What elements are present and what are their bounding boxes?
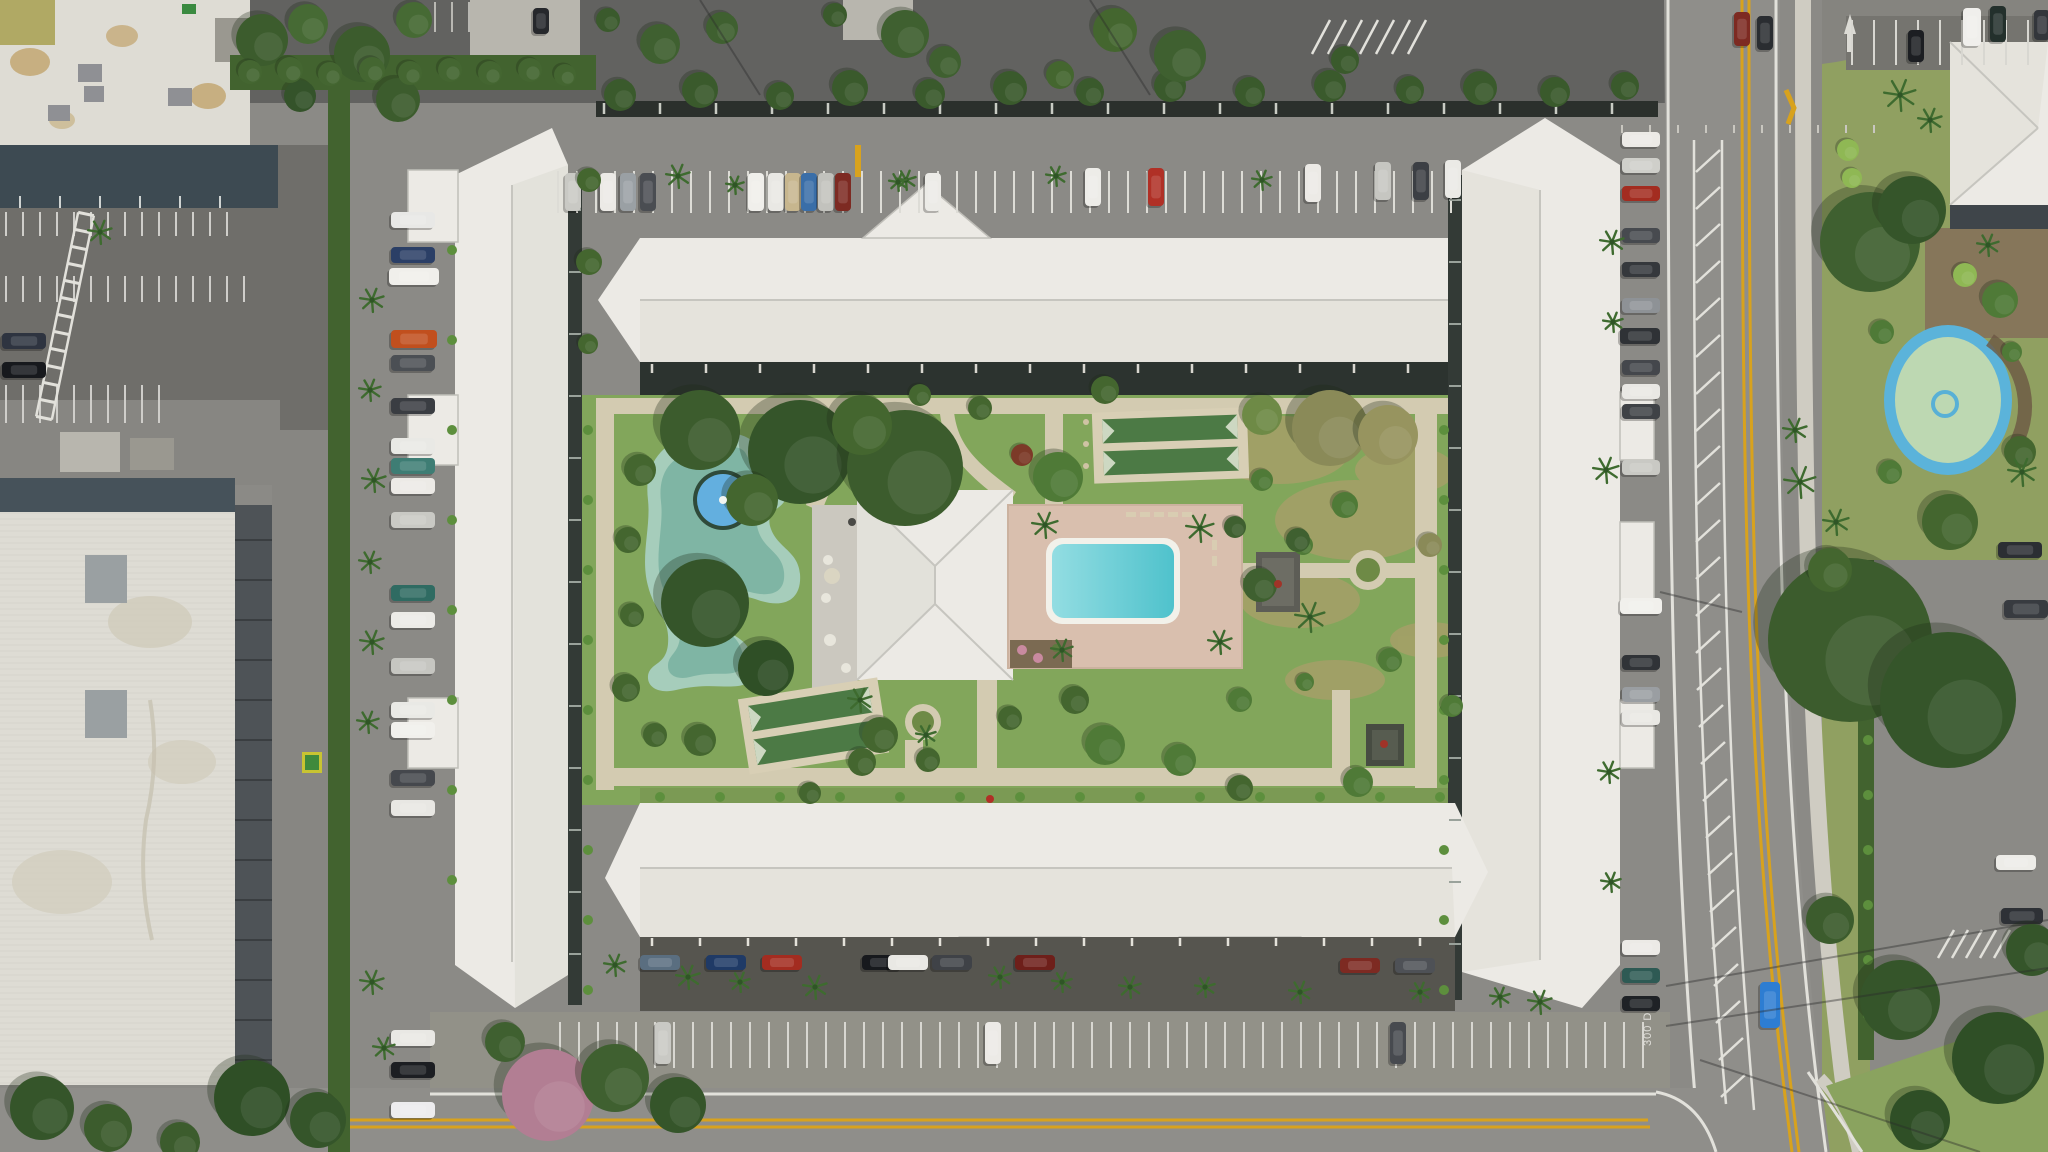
hedge-vertical	[328, 85, 350, 1152]
car-roof	[1448, 168, 1458, 191]
tree-highlight	[406, 69, 419, 82]
tree-highlight	[976, 404, 989, 417]
shrub	[447, 875, 457, 885]
tree-highlight	[295, 91, 313, 109]
palm-center	[1537, 999, 1542, 1004]
shrub	[1439, 425, 1449, 435]
palm-center	[1606, 769, 1611, 774]
tree-highlight	[254, 32, 283, 61]
tree-highlight	[1099, 739, 1121, 761]
car-roof	[1760, 23, 1770, 43]
tree-highlight	[1255, 580, 1274, 599]
car-roof	[11, 365, 37, 375]
tree-highlight	[1019, 452, 1031, 464]
tree-highlight	[917, 392, 929, 404]
site-rect	[1212, 556, 1217, 566]
car-roof	[1630, 231, 1653, 240]
site-rect	[1182, 512, 1192, 517]
site-dot	[1083, 463, 1089, 469]
tree-highlight	[1232, 524, 1244, 536]
tree-highlight	[32, 1098, 67, 1133]
shrub	[1863, 790, 1873, 800]
car-roof	[1993, 13, 2003, 35]
shrub	[1015, 792, 1025, 802]
car-roof	[1630, 265, 1653, 274]
shrub	[583, 845, 593, 855]
car-roof	[1378, 170, 1388, 193]
palm-center	[1927, 117, 1932, 122]
car-roof	[623, 181, 633, 204]
car-roof	[1630, 999, 1653, 1008]
tree-highlight	[888, 451, 952, 515]
car-roof	[1393, 1030, 1403, 1055]
site-rect	[85, 690, 127, 738]
pavement-text: 300 D	[1642, 1012, 1654, 1046]
palm-center	[1609, 239, 1614, 244]
shrub	[583, 565, 593, 575]
shrub	[1439, 775, 1449, 785]
site-dot	[1380, 740, 1388, 748]
tree-highlight	[1886, 468, 1899, 481]
car-roof	[1630, 135, 1653, 144]
car-roof	[2013, 604, 2039, 615]
palm-center	[1059, 647, 1064, 652]
tree-highlight	[651, 731, 664, 744]
palm-center	[857, 697, 862, 702]
car-roof	[400, 215, 426, 225]
tree-highlight	[1878, 328, 1891, 341]
shrub	[447, 785, 457, 795]
palm-center	[1985, 242, 1990, 247]
tree-highlight	[286, 66, 300, 80]
palm-center	[367, 387, 372, 392]
tree-highlight	[1071, 696, 1086, 711]
car-roof	[1630, 301, 1653, 310]
tree-highlight	[486, 69, 499, 82]
shrub	[835, 792, 845, 802]
palm-center	[1059, 979, 1064, 984]
shrub	[1135, 792, 1145, 802]
car-roof	[1967, 16, 1978, 39]
car-roof	[1737, 19, 1747, 39]
shrub	[1439, 495, 1449, 505]
car-roof	[400, 615, 426, 625]
site-rect	[168, 88, 192, 106]
car-roof	[1630, 971, 1653, 980]
building-top-right-face	[1950, 205, 2048, 229]
tree-highlight	[499, 1036, 521, 1058]
car-roof	[714, 958, 738, 967]
palm-center	[923, 732, 928, 737]
palm-center	[612, 962, 617, 967]
tree-highlight	[1056, 71, 1071, 86]
car-roof	[400, 250, 426, 260]
site-dot	[841, 663, 851, 673]
palm-center	[1217, 639, 1222, 644]
shrub	[1075, 792, 1085, 802]
tree-highlight	[1051, 470, 1079, 498]
car-roof	[804, 181, 814, 204]
shrub	[1439, 565, 1449, 575]
site-dot	[821, 593, 831, 603]
tree-highlight	[1386, 656, 1399, 669]
tree-highlight	[391, 93, 415, 117]
shrub	[715, 792, 725, 802]
tree-highlight	[1621, 82, 1636, 97]
site-dot	[824, 634, 836, 646]
tree-highlight	[326, 70, 339, 83]
tree-highlight	[1341, 56, 1356, 71]
tree-highlight	[940, 57, 958, 75]
tree-highlight	[1379, 426, 1412, 459]
shrub	[583, 635, 593, 645]
shrub	[447, 425, 457, 435]
site-dot	[719, 496, 727, 504]
palm-center	[1608, 879, 1613, 884]
tree-highlight	[1449, 703, 1461, 715]
tree-highlight	[585, 258, 599, 272]
car-roof	[658, 1030, 668, 1055]
tree-highlight	[853, 416, 886, 449]
car-roof	[788, 181, 798, 204]
tree-highlight	[776, 92, 791, 107]
tree-highlight	[898, 27, 924, 53]
shrub	[655, 792, 665, 802]
tree-highlight	[409, 15, 429, 35]
site-rect	[48, 105, 70, 121]
car-roof	[400, 1105, 426, 1115]
palm-center	[1202, 984, 1207, 989]
site-rect	[1168, 512, 1178, 517]
car-roof	[536, 13, 546, 29]
tree-highlight	[615, 90, 633, 108]
site-rect	[85, 555, 127, 603]
shrub	[583, 425, 593, 435]
palm-center	[1897, 92, 1902, 97]
car-roof	[400, 725, 426, 735]
tree-highlight	[2009, 349, 2020, 360]
palm-center	[371, 477, 376, 482]
car-roof	[400, 334, 428, 345]
shrub	[1863, 735, 1873, 745]
car-roof	[643, 181, 653, 204]
palm-center	[1797, 479, 1802, 484]
car-roof	[940, 958, 964, 967]
site-rect	[182, 4, 196, 14]
palm-center	[1042, 522, 1047, 527]
tree-highlight	[1325, 81, 1343, 99]
palm-center	[675, 173, 680, 178]
shrub	[1375, 792, 1385, 802]
shrub	[1863, 900, 1873, 910]
sawtooth-strip	[235, 505, 272, 1085]
site-dot	[824, 568, 840, 584]
car-roof	[603, 181, 613, 204]
car-roof	[1088, 176, 1098, 199]
site-rect	[130, 438, 174, 470]
building-top-right	[1950, 42, 2048, 229]
site-rect	[78, 64, 102, 82]
tree-highlight	[924, 756, 937, 769]
tree-highlight	[1426, 541, 1439, 554]
south-carport	[640, 937, 1455, 1011]
site-dot	[1274, 580, 1282, 588]
tree-highlight	[1302, 679, 1312, 689]
site-dot	[1083, 419, 1089, 425]
tree-highlight	[1005, 83, 1024, 102]
car-roof	[400, 358, 426, 368]
screenshot-root: 300 D	[0, 0, 2048, 1152]
palm-center	[1197, 525, 1202, 530]
shrub	[583, 775, 593, 785]
car-roof	[1764, 991, 1776, 1019]
site-dot	[986, 795, 994, 803]
palm-center	[2019, 469, 2024, 474]
car-roof	[400, 661, 426, 671]
tree-highlight	[1823, 563, 1847, 587]
tree-highlight	[654, 38, 676, 60]
tree-highlight	[585, 341, 596, 352]
shrub	[955, 792, 965, 802]
tree-highlight	[875, 730, 895, 750]
shrub	[1255, 792, 1265, 802]
shrub	[447, 515, 457, 525]
patio-garden-strip	[640, 788, 1455, 805]
tree-highlight	[446, 66, 459, 79]
car-roof	[770, 958, 794, 967]
car-roof	[1023, 958, 1047, 967]
shrub	[1439, 635, 1449, 645]
site-rect	[855, 145, 861, 177]
car-roof	[751, 181, 761, 204]
palm-center	[1603, 467, 1608, 472]
tree-highlight	[1995, 295, 2015, 315]
car-roof	[2009, 911, 2034, 921]
perimeter-wall	[596, 101, 1658, 117]
tree-highlight	[926, 90, 943, 107]
pool-water	[1052, 544, 1174, 618]
site-rect	[1212, 540, 1217, 550]
palm-center	[1297, 989, 1302, 994]
car-roof	[400, 588, 426, 598]
tree-highlight	[1294, 536, 1307, 549]
car-roof	[400, 773, 426, 783]
palm-center	[1259, 177, 1264, 182]
tree-highlight	[688, 418, 732, 462]
palm-center	[1833, 519, 1838, 524]
tree-highlight	[605, 1068, 642, 1105]
shrub	[583, 705, 593, 715]
tree-highlight	[2015, 447, 2033, 465]
tree-highlight	[101, 1121, 127, 1147]
car-roof	[1630, 463, 1653, 472]
car-roof	[896, 958, 920, 967]
tree-highlight	[635, 465, 653, 483]
tree-highlight	[1256, 409, 1278, 431]
palm-center	[1610, 319, 1615, 324]
shrub	[1195, 792, 1205, 802]
car-roof	[400, 481, 426, 491]
car-roof	[821, 181, 831, 204]
car-roof	[838, 181, 848, 204]
car-roof	[11, 336, 37, 346]
tree-highlight	[1823, 913, 1849, 939]
loading-canopy	[0, 478, 235, 512]
shrub	[1315, 792, 1325, 802]
site-rect	[1126, 512, 1136, 517]
car-roof	[400, 515, 426, 525]
tree-highlight	[368, 66, 382, 80]
palm-center	[1497, 994, 1502, 999]
palm-center	[369, 639, 374, 644]
car-roof	[1416, 170, 1426, 193]
building-commercial-bottom	[0, 478, 272, 1085]
car-roof	[1630, 658, 1653, 667]
site-rect	[84, 86, 104, 102]
shrub	[447, 335, 457, 345]
tree-highlight	[1551, 88, 1568, 105]
palm-center	[1127, 984, 1132, 989]
car-roof	[1630, 713, 1653, 722]
site-dot	[823, 555, 833, 565]
car-roof	[1630, 387, 1653, 396]
car-roof	[1630, 690, 1653, 699]
site-rect	[60, 432, 120, 472]
car-roof	[1911, 36, 1921, 55]
palm-center	[1417, 989, 1422, 994]
site-rect	[470, 0, 580, 55]
tree-highlight	[807, 790, 819, 802]
pool-area	[1008, 505, 1242, 668]
tree-highlight	[1341, 501, 1355, 515]
palm-center	[997, 974, 1002, 979]
palm-center	[369, 979, 374, 984]
palm-center	[732, 182, 737, 187]
car-roof	[2037, 16, 2047, 34]
west-building-face	[568, 180, 582, 1005]
tree-highlight	[604, 16, 617, 29]
car-roof	[400, 705, 426, 715]
palm-center	[1792, 427, 1797, 432]
corner-scrub	[0, 0, 55, 45]
tree-highlight	[585, 176, 598, 189]
shrub	[1863, 845, 1873, 855]
tree-highlight	[1888, 988, 1932, 1032]
tree-highlight	[1406, 86, 1421, 101]
car-roof	[400, 1033, 426, 1043]
tree-highlight	[1175, 755, 1193, 773]
tree-highlight	[1086, 88, 1101, 103]
tree-highlight	[1902, 200, 1939, 237]
car-roof	[648, 958, 672, 967]
tree-highlight	[744, 492, 773, 521]
shrub	[583, 985, 593, 995]
palm-center	[1053, 173, 1058, 178]
shrub	[775, 792, 785, 802]
tree-highlight	[1984, 1044, 2035, 1095]
tree-highlight	[1475, 83, 1494, 102]
site-rect	[1140, 512, 1150, 517]
palm-center	[895, 179, 900, 184]
tree-highlight	[1246, 88, 1263, 105]
car-roof	[771, 181, 781, 204]
palm-center	[737, 979, 742, 984]
car-roof	[1308, 172, 1318, 195]
car-roof	[1403, 961, 1427, 970]
car-roof	[1630, 189, 1653, 198]
site-dot	[848, 518, 856, 526]
car-roof	[1628, 601, 1653, 611]
shrub	[1435, 792, 1445, 802]
tree-highlight	[692, 590, 740, 638]
tree-highlight	[845, 83, 865, 103]
tree-highlight	[246, 68, 259, 81]
shrub	[447, 695, 457, 705]
shrub	[1439, 985, 1449, 995]
shrub	[447, 245, 457, 255]
tree-highlight	[562, 72, 574, 84]
tree-highlight	[1236, 784, 1250, 798]
site-rect	[305, 755, 319, 770]
car-roof	[928, 181, 938, 204]
palm-center	[97, 229, 102, 234]
tree-highlight	[310, 1112, 341, 1143]
tree-highlight	[1236, 696, 1249, 709]
car-roof	[1151, 176, 1161, 199]
west-service-lane	[272, 430, 334, 1152]
tree-highlight	[534, 1081, 585, 1132]
car-roof	[400, 803, 426, 813]
car-roof	[400, 461, 426, 471]
car-roof	[1348, 961, 1372, 970]
palm-center	[812, 984, 817, 989]
car-roof	[400, 441, 426, 451]
car-roof	[2004, 858, 2028, 867]
tree-highlight	[1006, 714, 1019, 727]
tree-highlight	[1172, 48, 1201, 77]
car-roof	[400, 1065, 426, 1075]
car-roof	[988, 1030, 998, 1055]
tree-highlight	[784, 436, 841, 493]
palm-center	[381, 1045, 386, 1050]
tree-highlight	[624, 536, 638, 550]
tree-highlight	[695, 735, 713, 753]
tree-highlight	[695, 85, 715, 105]
tree-highlight	[1354, 778, 1371, 795]
tree-highlight	[1928, 680, 2003, 755]
tree-highlight	[1845, 147, 1857, 159]
tree-highlight	[628, 611, 641, 624]
site-rect	[1154, 512, 1164, 517]
car-roof	[400, 401, 426, 411]
tree-highlight	[1961, 271, 1974, 284]
car-roof	[399, 271, 429, 281]
car-roof	[568, 181, 578, 204]
tree-highlight	[831, 11, 844, 24]
shrub	[583, 495, 593, 505]
palm-center	[367, 559, 372, 564]
shrub	[1439, 845, 1449, 855]
shuffleboard-north	[1092, 407, 1249, 483]
car-roof	[1630, 363, 1653, 372]
tree-highlight	[1849, 175, 1860, 186]
shrub	[447, 605, 457, 615]
tree-highlight	[1165, 81, 1183, 99]
tree-highlight	[526, 66, 539, 79]
car-roof	[1630, 161, 1653, 170]
site-dot	[1083, 441, 1089, 447]
palm-center	[685, 974, 690, 979]
